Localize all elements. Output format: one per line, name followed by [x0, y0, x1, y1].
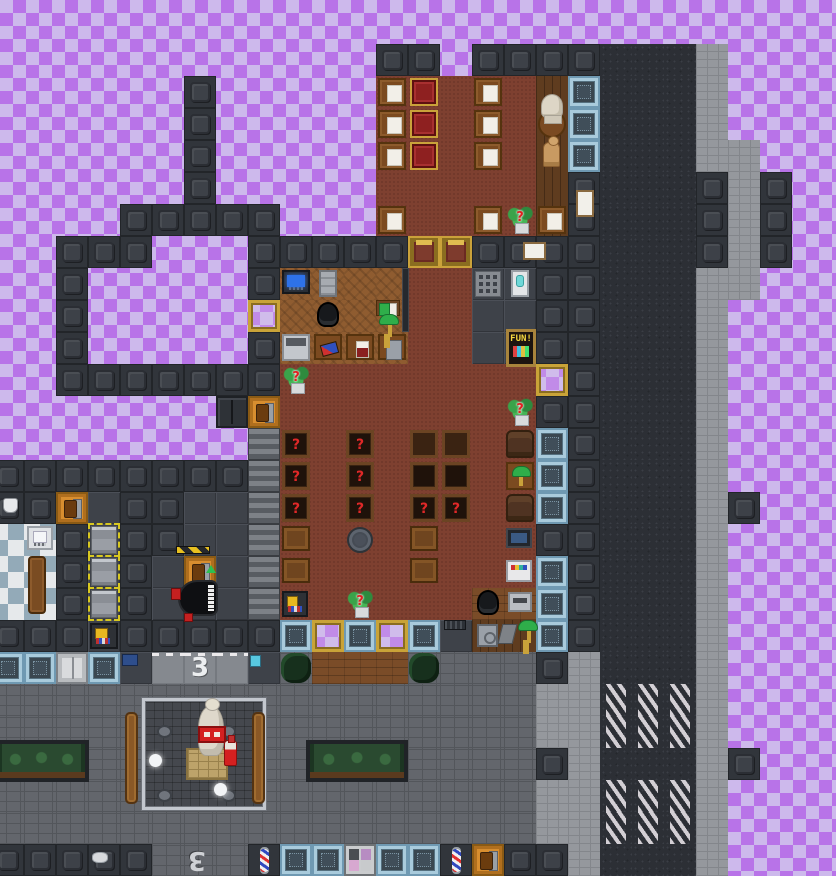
- wall-tile: [120, 492, 152, 524]
- gold-framed-window[interactable]: [312, 620, 344, 652]
- sidewalk: [696, 300, 728, 332]
- road: [632, 492, 664, 524]
- bookshelf-random[interactable]: ?: [282, 494, 310, 522]
- gold-framed-window[interactable]: [536, 364, 568, 396]
- storage-rack[interactable]: [91, 558, 117, 586]
- wall-tile: [216, 364, 248, 396]
- bookshelf-random[interactable]: ?: [346, 494, 374, 522]
- road: [632, 748, 664, 780]
- sidewalk: [568, 748, 600, 780]
- bookshelf-random[interactable]: ?: [410, 494, 438, 522]
- road: [600, 140, 632, 172]
- red-wood-floor: [376, 428, 408, 460]
- table-with-paper[interactable]: [474, 110, 502, 138]
- road: [600, 300, 632, 332]
- pavement: [504, 684, 536, 716]
- reinforced-window[interactable]: [568, 140, 600, 172]
- bookshelf-empty[interactable]: [442, 462, 470, 490]
- salon-door[interactable]: [344, 844, 376, 876]
- sidewalk: [696, 652, 728, 684]
- wall-tile: [24, 460, 56, 492]
- pavement: [152, 844, 184, 876]
- ground-hatch: [157, 725, 172, 738]
- road: [632, 268, 664, 300]
- potted-plant-random[interactable]: ?: [282, 366, 310, 394]
- fancy-red-chair[interactable]: [410, 110, 438, 138]
- wooden-locker[interactable]: [28, 556, 46, 614]
- small-blue-item[interactable]: [250, 655, 261, 667]
- banker-lamp[interactable]: [518, 620, 538, 631]
- plating-floor: [216, 492, 248, 524]
- wood-deck-floor: [376, 652, 408, 684]
- wall-tile: [536, 396, 568, 428]
- statue-bust[interactable]: [541, 94, 563, 118]
- wall-tile: [696, 204, 728, 236]
- wall-tile: [696, 236, 728, 268]
- orange-airlock[interactable]: [56, 492, 88, 524]
- pavement: [504, 812, 536, 844]
- wood-table[interactable]: [410, 430, 438, 458]
- redemption-machine[interactable]: [90, 623, 118, 649]
- sidewalk: [536, 684, 568, 716]
- reinforced-window[interactable]: [280, 620, 312, 652]
- red-wood-floor: [408, 204, 440, 236]
- water-cooler[interactable]: [511, 270, 529, 297]
- wood-crate-table[interactable]: [282, 558, 310, 583]
- wall-tile: [376, 44, 408, 76]
- table-with-paper[interactable]: [378, 206, 406, 234]
- wall-tile: [184, 364, 216, 396]
- wall-tile: [56, 364, 88, 396]
- road: [664, 204, 696, 236]
- bookshelf-random[interactable]: ?: [282, 462, 310, 490]
- book-scanner-machine[interactable]: [506, 560, 532, 582]
- wall-tile: [56, 524, 88, 556]
- dark-wood-floor: [536, 172, 568, 204]
- road: [632, 172, 664, 204]
- red-wood-floor: [376, 396, 408, 428]
- fancy-red-chair[interactable]: [410, 78, 438, 106]
- red-bottle[interactable]: [224, 740, 237, 766]
- plating-floor: [216, 524, 248, 556]
- pavement: [280, 812, 312, 844]
- reinforced-window[interactable]: [408, 620, 440, 652]
- window-shutters[interactable]: [248, 588, 280, 620]
- bookshelf-random[interactable]: ?: [442, 494, 470, 522]
- reinforced-window[interactable]: [536, 588, 568, 620]
- window-shutters[interactable]: [248, 556, 280, 588]
- gold-glass-door[interactable]: [440, 236, 472, 268]
- sidewalk: [696, 44, 728, 76]
- window-shutters[interactable]: [248, 460, 280, 492]
- road-lane: [152, 652, 184, 684]
- blank-poster: [523, 242, 546, 260]
- red-wood-floor: [504, 364, 536, 396]
- plating-floor: [504, 300, 536, 332]
- pavement: [408, 716, 440, 748]
- red-item[interactable]: [184, 613, 193, 622]
- pavement: [0, 684, 24, 716]
- armchair[interactable]: [506, 430, 534, 458]
- table-with-banker-lamp[interactable]: [506, 462, 534, 490]
- reinforced-window[interactable]: [312, 844, 344, 876]
- road-marking-3: 3: [188, 653, 212, 683]
- road: [664, 652, 696, 684]
- wall-tile: [472, 236, 504, 268]
- red-wood-floor: [312, 364, 344, 396]
- safe[interactable]: [477, 624, 498, 647]
- wall-tile: [184, 620, 216, 652]
- office-chair[interactable]: [477, 590, 499, 615]
- blue-crate[interactable]: [122, 654, 138, 666]
- potted-plant-random[interactable]: ?: [346, 590, 374, 618]
- computer-console[interactable]: [282, 270, 310, 294]
- wall-tile: [216, 620, 248, 652]
- pavement: [24, 812, 56, 844]
- wall-tile: [152, 492, 184, 524]
- road: [664, 428, 696, 460]
- wall-tile: [568, 236, 600, 268]
- red-wood-floor: [440, 556, 472, 588]
- wall-tile: [504, 44, 536, 76]
- pavement: [504, 780, 536, 812]
- wall-tile: [56, 620, 88, 652]
- wall-tile: [760, 204, 792, 236]
- bookshelf-random[interactable]: ?: [282, 430, 310, 458]
- pavement: [408, 812, 440, 844]
- red-banner[interactable]: [198, 726, 226, 743]
- pavement: [24, 780, 56, 812]
- orange-airlock[interactable]: [472, 844, 504, 876]
- red-wood-floor: [472, 556, 504, 588]
- wall-console[interactable]: [27, 526, 53, 550]
- potted-plant-random[interactable]: ?: [506, 206, 534, 234]
- crosswalk: [600, 780, 632, 812]
- wall-tile: [280, 236, 312, 268]
- sidewalk: [728, 172, 760, 204]
- road: [632, 556, 664, 588]
- storage-rack[interactable]: [91, 526, 117, 554]
- plating-floor: [472, 300, 504, 332]
- road: [632, 588, 664, 620]
- road: [632, 620, 664, 652]
- pavement: [472, 812, 504, 844]
- pavement: [280, 684, 312, 716]
- road: [632, 76, 664, 108]
- reinforced-window[interactable]: [0, 652, 24, 684]
- pavement: [88, 716, 120, 748]
- wall-tile: [408, 44, 440, 76]
- road: [600, 588, 632, 620]
- wall-tile: [120, 364, 152, 396]
- pavement: [184, 812, 216, 844]
- sidewalk: [696, 140, 728, 172]
- ground-hatch: [157, 789, 172, 802]
- game-map: ????????????FUN!33: [0, 0, 836, 876]
- red-wood-floor: [376, 492, 408, 524]
- checker-tile-floor: [0, 524, 24, 556]
- wall-tile: [536, 844, 568, 876]
- red-wood-floor: [440, 524, 472, 556]
- gold-glass-door[interactable]: [408, 236, 440, 268]
- pavement: [504, 716, 536, 748]
- sidewalk: [568, 780, 600, 812]
- crosswalk: [632, 780, 664, 812]
- plating-floor: [216, 588, 248, 620]
- wall-tile: [56, 556, 88, 588]
- wall-tile: [568, 524, 600, 556]
- wooden-gate[interactable]: [125, 712, 138, 804]
- copier-machine[interactable]: [282, 334, 310, 361]
- sidewalk: [696, 268, 728, 300]
- wall-tile: [216, 460, 248, 492]
- wall-tile: [120, 556, 152, 588]
- road: [600, 620, 632, 652]
- wood-crate-table[interactable]: [282, 526, 310, 551]
- wall-tile: [728, 748, 760, 780]
- reinforced-window[interactable]: [24, 652, 56, 684]
- road: [632, 460, 664, 492]
- pavement: [440, 780, 472, 812]
- pavement: [152, 812, 184, 844]
- wall-tile: [536, 524, 568, 556]
- sidewalk: [696, 844, 728, 876]
- table-with-paper[interactable]: [474, 78, 502, 106]
- road: [632, 844, 664, 876]
- reinforced-window[interactable]: [536, 492, 568, 524]
- pavement: [216, 812, 248, 844]
- sidewalk: [568, 844, 600, 876]
- sidewalk: [536, 780, 568, 812]
- red-wood-floor: [376, 364, 408, 396]
- table-with-doll[interactable]: [346, 334, 374, 360]
- road: [600, 364, 632, 396]
- barber-pole-wall: [440, 844, 472, 876]
- reinforced-window[interactable]: [536, 620, 568, 652]
- crosswalk: [632, 716, 664, 748]
- road: [600, 76, 632, 108]
- red-wood-floor: [376, 524, 408, 556]
- wall-tile: [88, 236, 120, 268]
- wall-tile: [184, 460, 216, 492]
- plating-floor: [216, 556, 248, 588]
- sidewalk: [728, 140, 760, 172]
- road: [664, 748, 696, 780]
- wall-tile: [568, 44, 600, 76]
- table-with-paper[interactable]: [378, 78, 406, 106]
- reinforced-window[interactable]: [536, 428, 568, 460]
- wall-tile: [536, 652, 568, 684]
- wall-tile: [248, 620, 280, 652]
- wood-crate-table[interactable]: [410, 526, 438, 551]
- table-with-paper[interactable]: [474, 206, 502, 234]
- armchair[interactable]: [506, 494, 534, 522]
- sidewalk: [536, 812, 568, 844]
- banker-lamp[interactable]: [379, 314, 399, 325]
- wall-tile: [376, 236, 408, 268]
- red-wood-floor: [440, 300, 472, 332]
- red-wood-floor: [408, 332, 440, 364]
- pavement: [56, 812, 88, 844]
- hazard-stripe: [176, 546, 210, 554]
- table-with-paper[interactable]: [474, 142, 502, 170]
- red-wood-floor: [312, 460, 344, 492]
- pavement: [0, 812, 24, 844]
- sidewalk: [568, 652, 600, 684]
- reinforced-window[interactable]: [568, 108, 600, 140]
- table-with-paper[interactable]: [378, 142, 406, 170]
- pavement: [312, 812, 344, 844]
- pavement: [440, 748, 472, 780]
- potted-plant-random[interactable]: ?: [506, 398, 534, 426]
- window-shutters[interactable]: [248, 492, 280, 524]
- red-wood-floor: [344, 364, 376, 396]
- table-with-paper[interactable]: [538, 206, 566, 234]
- wood-table[interactable]: [442, 430, 470, 458]
- wall-tile: [568, 364, 600, 396]
- crosswalk: [600, 684, 632, 716]
- reinforced-window[interactable]: [344, 620, 376, 652]
- road: [664, 364, 696, 396]
- pavement: [472, 684, 504, 716]
- wall-tile: [696, 172, 728, 204]
- blank-poster: [576, 190, 594, 217]
- vending-machine-fun[interactable]: FUN!: [506, 329, 536, 367]
- wall-tile: [120, 204, 152, 236]
- reinforced-window[interactable]: [88, 652, 120, 684]
- gold-framed-window[interactable]: [248, 300, 280, 332]
- wall-tile: [216, 204, 248, 236]
- wall-tile: [56, 460, 88, 492]
- pavement: [88, 748, 120, 780]
- plating-floor: [184, 492, 216, 524]
- fancy-red-chair[interactable]: [410, 142, 438, 170]
- dark-double-door[interactable]: [216, 396, 248, 428]
- wall-tile: [568, 396, 600, 428]
- mannequin[interactable]: [543, 142, 560, 167]
- pavement: [216, 844, 248, 876]
- reinforced-window[interactable]: [376, 844, 408, 876]
- sidewalk: [696, 748, 728, 780]
- road: [664, 492, 696, 524]
- road: [600, 204, 632, 236]
- window-shutters[interactable]: [248, 524, 280, 556]
- sidewalk: [568, 812, 600, 844]
- reinforced-window[interactable]: [408, 844, 440, 876]
- pavement: [472, 748, 504, 780]
- wooden-gate[interactable]: [252, 712, 265, 804]
- wall-tile: [56, 844, 88, 876]
- pavement: [408, 684, 440, 716]
- table-with-bin[interactable]: [378, 334, 406, 360]
- red-wood-floor: [472, 396, 504, 428]
- red-book[interactable]: [171, 588, 181, 600]
- sidewalk: [696, 460, 728, 492]
- road: [664, 588, 696, 620]
- reinforced-window[interactable]: [536, 556, 568, 588]
- sidewalk: [696, 684, 728, 716]
- game-screenshot: { "meta": { "description": "Top-down 2D …: [0, 0, 836, 876]
- orange-airlock[interactable]: [248, 396, 280, 428]
- wall-tile: [568, 332, 600, 364]
- table-with-paper[interactable]: [378, 110, 406, 138]
- reinforced-window[interactable]: [280, 844, 312, 876]
- pavement: [88, 684, 120, 716]
- reinforced-window[interactable]: [536, 460, 568, 492]
- wall-tile: [0, 844, 24, 876]
- wall-tile: [760, 236, 792, 268]
- reinforced-window[interactable]: [568, 76, 600, 108]
- red-wood-floor: [504, 172, 536, 204]
- red-wood-floor: [472, 524, 504, 556]
- storage-rack[interactable]: [91, 590, 117, 618]
- wall-tile: [472, 44, 504, 76]
- tv-console[interactable]: [506, 528, 532, 548]
- filing-cabinet[interactable]: [319, 270, 337, 297]
- road: [632, 44, 664, 76]
- wood-deck-floor: [344, 652, 376, 684]
- gold-framed-window[interactable]: [376, 620, 408, 652]
- bookshelf-random[interactable]: ?: [346, 462, 374, 490]
- pavement: [56, 780, 88, 812]
- pavement: [440, 652, 472, 684]
- floor-vent: [444, 620, 466, 630]
- floor-grille[interactable]: [475, 271, 501, 297]
- redemption-machine[interactable]: [282, 591, 308, 617]
- red-wood-floor: [312, 524, 344, 556]
- pavement: [472, 716, 504, 748]
- bookshelf-empty[interactable]: [410, 462, 438, 490]
- road: [632, 108, 664, 140]
- window-shutters[interactable]: [248, 428, 280, 460]
- road: [600, 492, 632, 524]
- table-with-crayons[interactable]: [314, 334, 342, 360]
- road: [600, 652, 632, 684]
- red-wood-floor: [408, 396, 440, 428]
- office-chair[interactable]: [317, 302, 339, 327]
- wood-crate-table[interactable]: [410, 558, 438, 583]
- sidewalk: [696, 780, 728, 812]
- sidewalk: [696, 76, 728, 108]
- pavement: [376, 812, 408, 844]
- status-arrow: [206, 565, 216, 573]
- pavement: [88, 780, 120, 812]
- road: [632, 524, 664, 556]
- sidewalk: [728, 268, 760, 300]
- grand-piano[interactable]: [178, 580, 218, 616]
- pavement: [376, 780, 408, 812]
- red-wood-floor: [280, 396, 312, 428]
- white-airlock[interactable]: [56, 652, 88, 684]
- red-wood-floor: [408, 268, 440, 300]
- floor-hatch[interactable]: [347, 527, 373, 553]
- wall-tile: [568, 268, 600, 300]
- red-wood-floor: [440, 140, 472, 172]
- red-wood-floor: [312, 492, 344, 524]
- printer[interactable]: [508, 592, 532, 612]
- pavement: [120, 812, 152, 844]
- red-wood-floor: [312, 428, 344, 460]
- road: [600, 460, 632, 492]
- red-wood-floor: [408, 172, 440, 204]
- road: [600, 332, 632, 364]
- road: [664, 524, 696, 556]
- red-wood-floor: [472, 364, 504, 396]
- wall-tile: [56, 268, 88, 300]
- bookshelf-random[interactable]: ?: [346, 430, 374, 458]
- wall-tile: [568, 460, 600, 492]
- pavement: [56, 684, 88, 716]
